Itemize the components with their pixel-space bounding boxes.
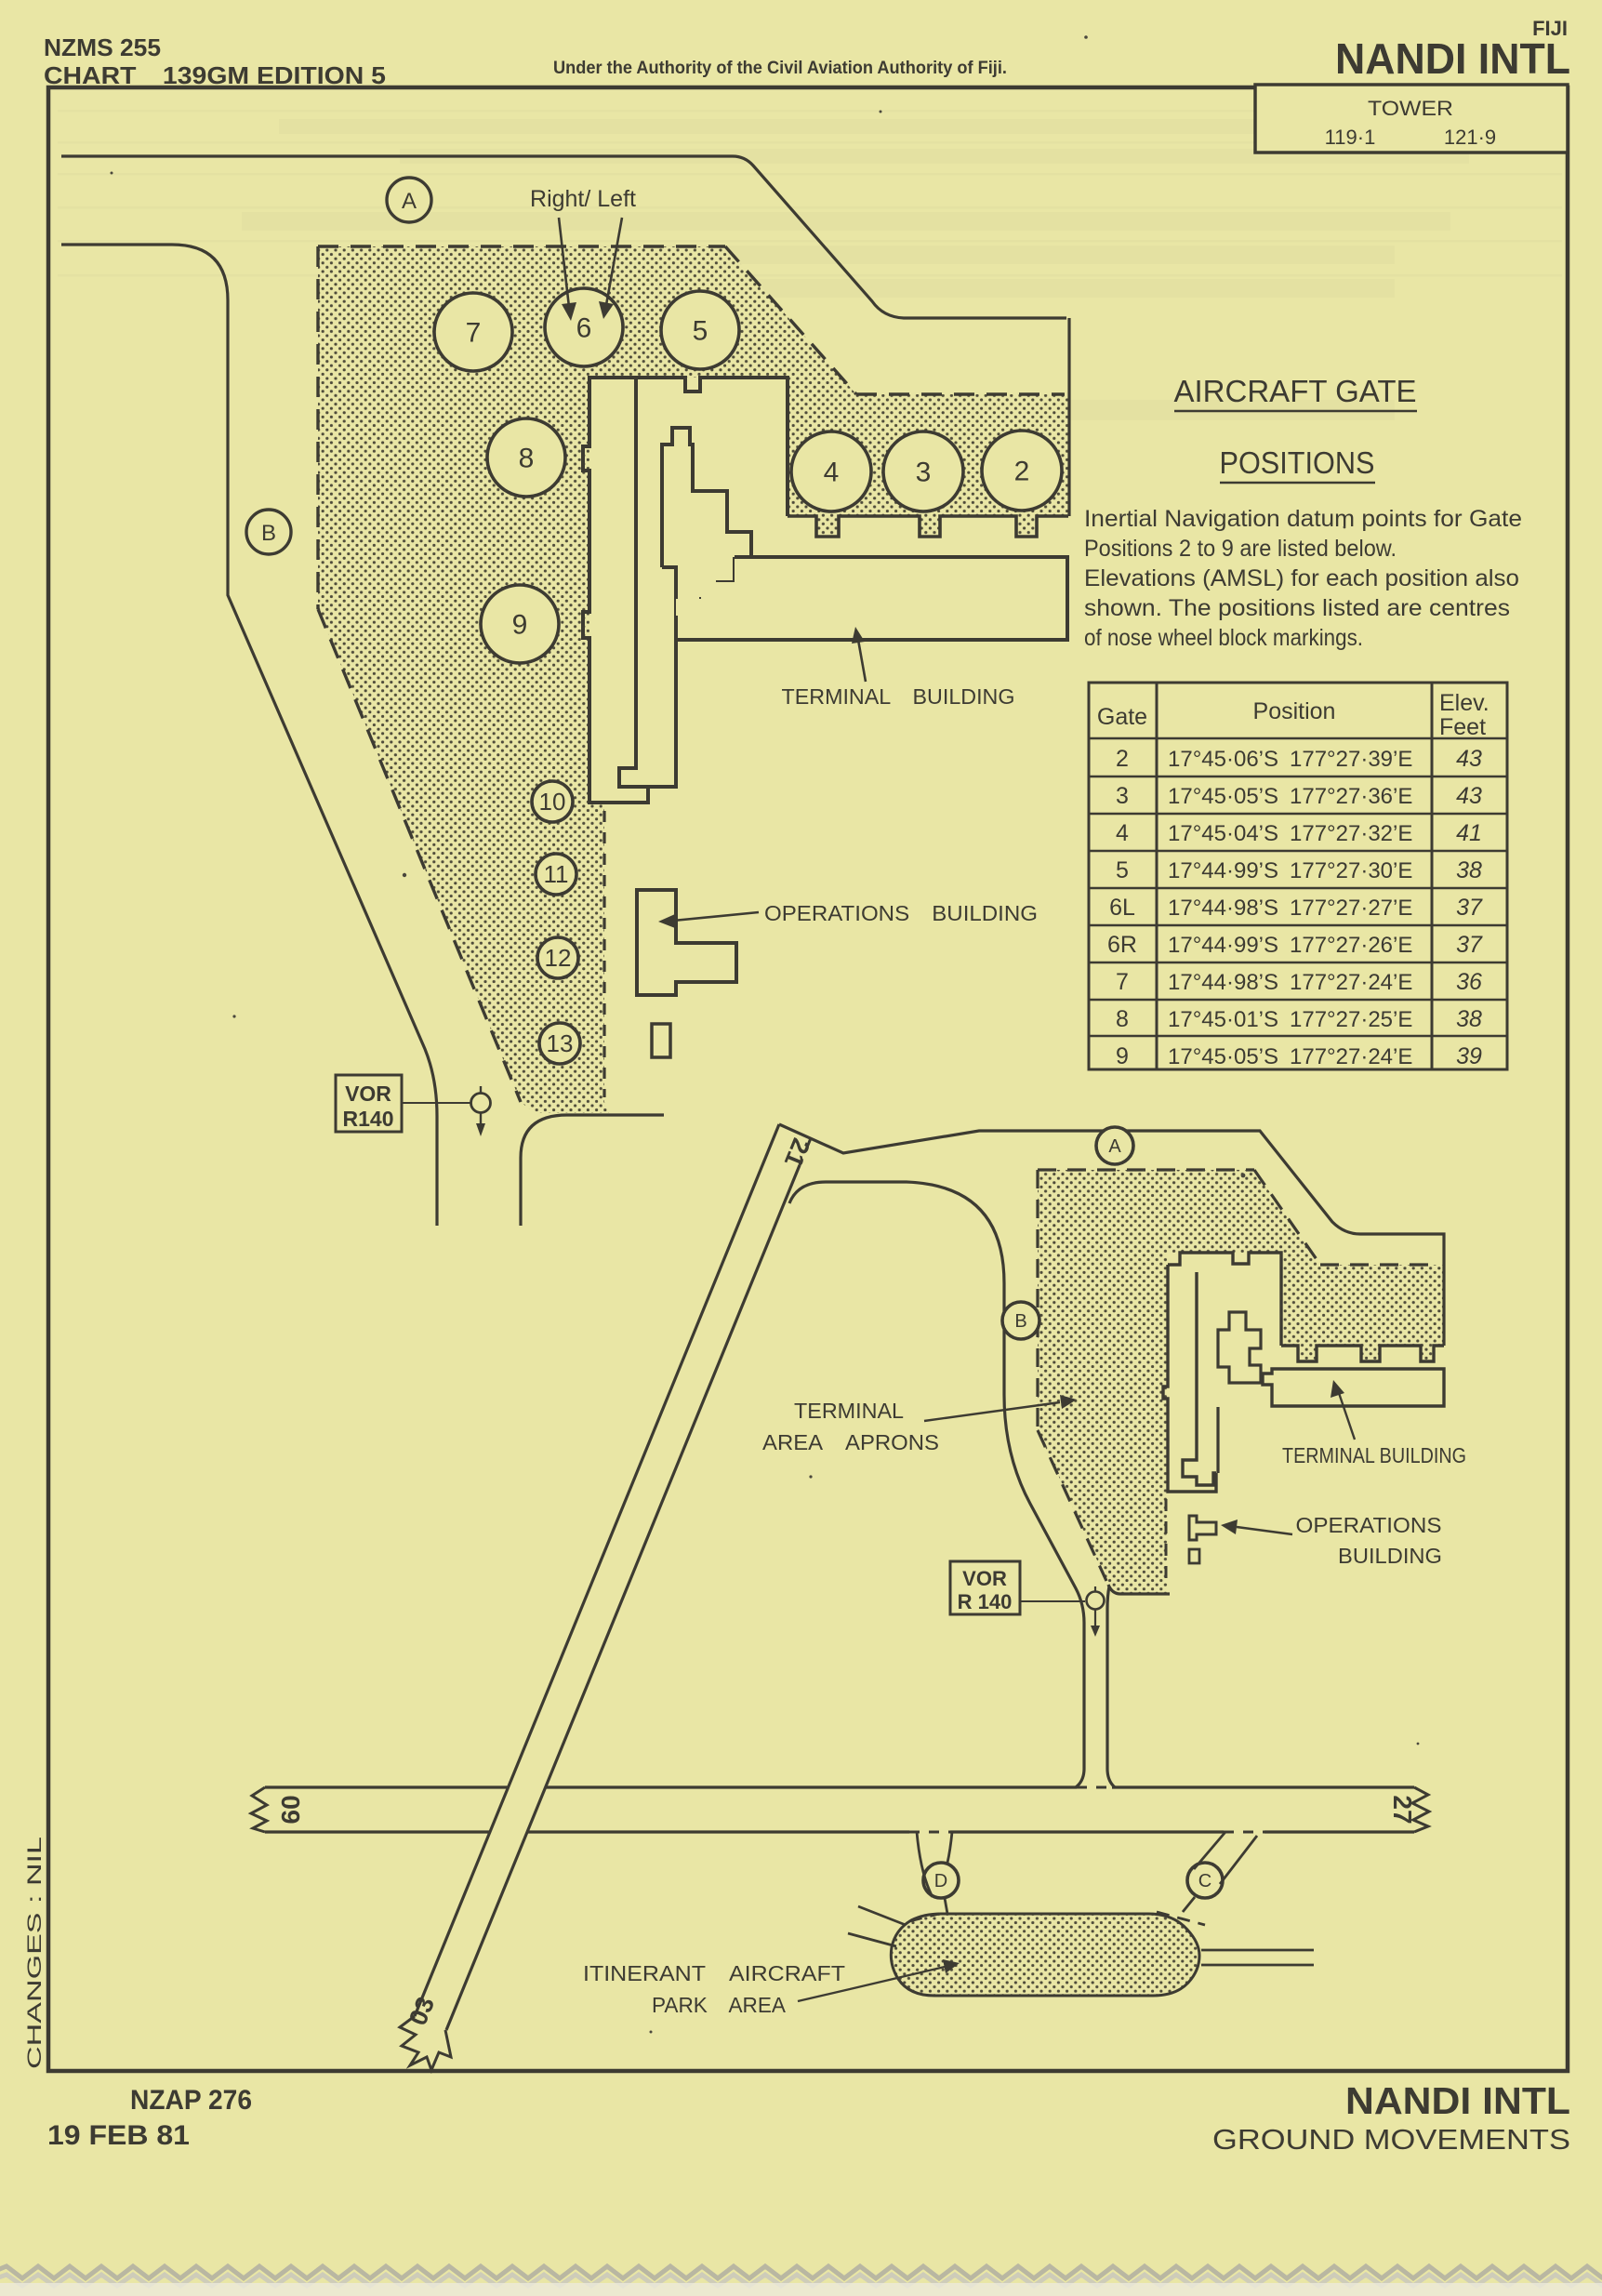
svg-text:177°27·24’E: 177°27·24’E: [1290, 970, 1412, 995]
svg-text:R 140: R 140: [958, 1590, 1013, 1613]
svg-text:B: B: [1014, 1311, 1026, 1332]
svg-text:177°27·32’E: 177°27·32’E: [1290, 821, 1412, 846]
svg-text:CHART 139GM EDITION 5: CHART 139GM EDITION 5: [44, 61, 386, 89]
svg-text:Gate: Gate: [1097, 704, 1147, 730]
svg-text:AIRCRAFT GATE: AIRCRAFT GATE: [1174, 374, 1417, 408]
svg-text:AREA APRONS: AREA APRONS: [762, 1430, 939, 1454]
svg-text:POSITIONS: POSITIONS: [1220, 445, 1375, 480]
svg-text:17°44·98’S: 17°44·98’S: [1168, 970, 1278, 995]
svg-text:9: 9: [512, 610, 528, 641]
svg-text:17°44·99’S: 17°44·99’S: [1168, 933, 1278, 958]
svg-text:6L: 6L: [1109, 895, 1135, 921]
svg-text:6R: 6R: [1107, 932, 1137, 958]
svg-text:4: 4: [1116, 820, 1129, 846]
svg-text:19 FEB 81: 19 FEB 81: [47, 2120, 190, 2151]
svg-text:PARK AREA: PARK AREA: [652, 1993, 787, 2017]
svg-text:5: 5: [1116, 857, 1129, 883]
svg-text:13: 13: [547, 1029, 574, 1057]
svg-text:8: 8: [1116, 1006, 1129, 1032]
svg-text:Position: Position: [1253, 698, 1336, 724]
svg-text:177°27·30’E: 177°27·30’E: [1290, 858, 1412, 883]
svg-text:17°45·01’S: 17°45·01’S: [1168, 1007, 1278, 1032]
svg-text:3: 3: [1116, 783, 1129, 809]
svg-text:3: 3: [916, 458, 932, 488]
svg-text:7: 7: [466, 318, 482, 349]
svg-text:38: 38: [1456, 1006, 1482, 1032]
svg-text:17°45·05’S: 17°45·05’S: [1168, 784, 1278, 809]
svg-text:121·9: 121·9: [1444, 126, 1496, 149]
svg-text:Right/ Left: Right/ Left: [530, 186, 636, 212]
svg-text:9: 9: [1116, 1043, 1129, 1069]
svg-text:37: 37: [1456, 932, 1483, 958]
svg-text:TOWER: TOWER: [1368, 97, 1453, 120]
svg-text:17°45·06’S: 17°45·06’S: [1168, 747, 1278, 772]
svg-text:177°27·24’E: 177°27·24’E: [1290, 1044, 1412, 1069]
svg-text:TERMINAL: TERMINAL: [794, 1399, 904, 1423]
svg-text:shown. The positions listed ar: shown. The positions listed are centres: [1084, 595, 1510, 621]
svg-text:09: 09: [276, 1795, 305, 1824]
svg-text:Inertial Navigation datum poin: Inertial Navigation datum points for Gat…: [1084, 506, 1522, 532]
svg-text:VOR: VOR: [345, 1082, 391, 1106]
svg-text:10: 10: [539, 788, 566, 816]
svg-text:R140: R140: [343, 1107, 394, 1131]
svg-text:43: 43: [1456, 783, 1482, 809]
svg-text:NZAP 276: NZAP 276: [130, 2085, 252, 2116]
svg-text:D: D: [934, 1871, 947, 1891]
svg-text:2: 2: [1014, 457, 1030, 487]
svg-text:39: 39: [1456, 1043, 1482, 1069]
svg-text:17°44·99’S: 17°44·99’S: [1168, 858, 1278, 883]
svg-text:NANDI INTL: NANDI INTL: [1335, 34, 1570, 83]
svg-text:Elevations (AMSL) for each pos: Elevations (AMSL) for each position also: [1084, 565, 1519, 591]
svg-text:17°45·04’S: 17°45·04’S: [1168, 821, 1278, 846]
svg-text:NANDI INTL: NANDI INTL: [1345, 2079, 1570, 2122]
svg-text:NZMS 255: NZMS 255: [44, 33, 161, 61]
svg-text:17°45·05’S: 17°45·05’S: [1168, 1044, 1278, 1069]
svg-text:177°27·36’E: 177°27·36’E: [1290, 784, 1412, 809]
svg-text:119·1: 119·1: [1325, 126, 1376, 149]
svg-text:BUILDING: BUILDING: [1338, 1544, 1442, 1568]
svg-text:177°27·39’E: 177°27·39’E: [1290, 747, 1412, 772]
svg-text:A: A: [1108, 1136, 1121, 1157]
svg-text:TERMINAL BUILDING: TERMINAL BUILDING: [1282, 1443, 1466, 1467]
svg-text:ITINERANT AIRCRAFT: ITINERANT AIRCRAFT: [583, 1961, 845, 1985]
svg-text:5: 5: [693, 316, 708, 347]
svg-text:Elev.: Elev.: [1439, 690, 1489, 716]
svg-text:38: 38: [1456, 857, 1482, 883]
svg-text:41: 41: [1456, 820, 1482, 846]
svg-text:17°44·98’S: 17°44·98’S: [1168, 896, 1278, 921]
svg-text:4: 4: [824, 458, 840, 488]
svg-text:Under the Authority of the Civ: Under the Authority of the Civil Aviatio…: [553, 59, 1007, 78]
svg-text:GROUND MOVEMENTS: GROUND MOVEMENTS: [1212, 2123, 1570, 2156]
svg-text:VOR: VOR: [962, 1567, 1007, 1590]
svg-text:177°27·26’E: 177°27·26’E: [1290, 933, 1412, 958]
svg-text:43: 43: [1456, 746, 1482, 772]
svg-text:C: C: [1198, 1871, 1211, 1891]
svg-text:TERMINAL BUILDING: TERMINAL BUILDING: [782, 684, 1015, 709]
svg-text:37: 37: [1456, 895, 1483, 921]
svg-text:2: 2: [1116, 746, 1129, 772]
svg-text:8: 8: [519, 444, 535, 474]
svg-text:177°27·27’E: 177°27·27’E: [1290, 896, 1412, 921]
svg-text:177°27·25’E: 177°27·25’E: [1290, 1007, 1412, 1032]
svg-text:12: 12: [545, 944, 572, 972]
svg-text:6: 6: [576, 313, 592, 344]
svg-text:7: 7: [1116, 969, 1129, 995]
svg-text:OPERATIONS: OPERATIONS: [1296, 1513, 1442, 1537]
svg-text:11: 11: [544, 860, 569, 888]
svg-text:36: 36: [1456, 969, 1482, 995]
svg-text:Feet: Feet: [1439, 714, 1486, 740]
svg-text:of nose wheel block markings.: of nose wheel block markings.: [1084, 625, 1363, 651]
svg-text:27: 27: [1388, 1795, 1417, 1824]
svg-text:A: A: [402, 189, 417, 214]
svg-text:CHANGES : NIL: CHANGES : NIL: [24, 1837, 46, 2069]
svg-text:OPERATIONS BUILDING: OPERATIONS BUILDING: [764, 901, 1038, 925]
svg-text:Positions 2 to 9 are listed be: Positions 2 to 9 are listed below.: [1084, 536, 1397, 562]
svg-text:B: B: [261, 521, 276, 546]
